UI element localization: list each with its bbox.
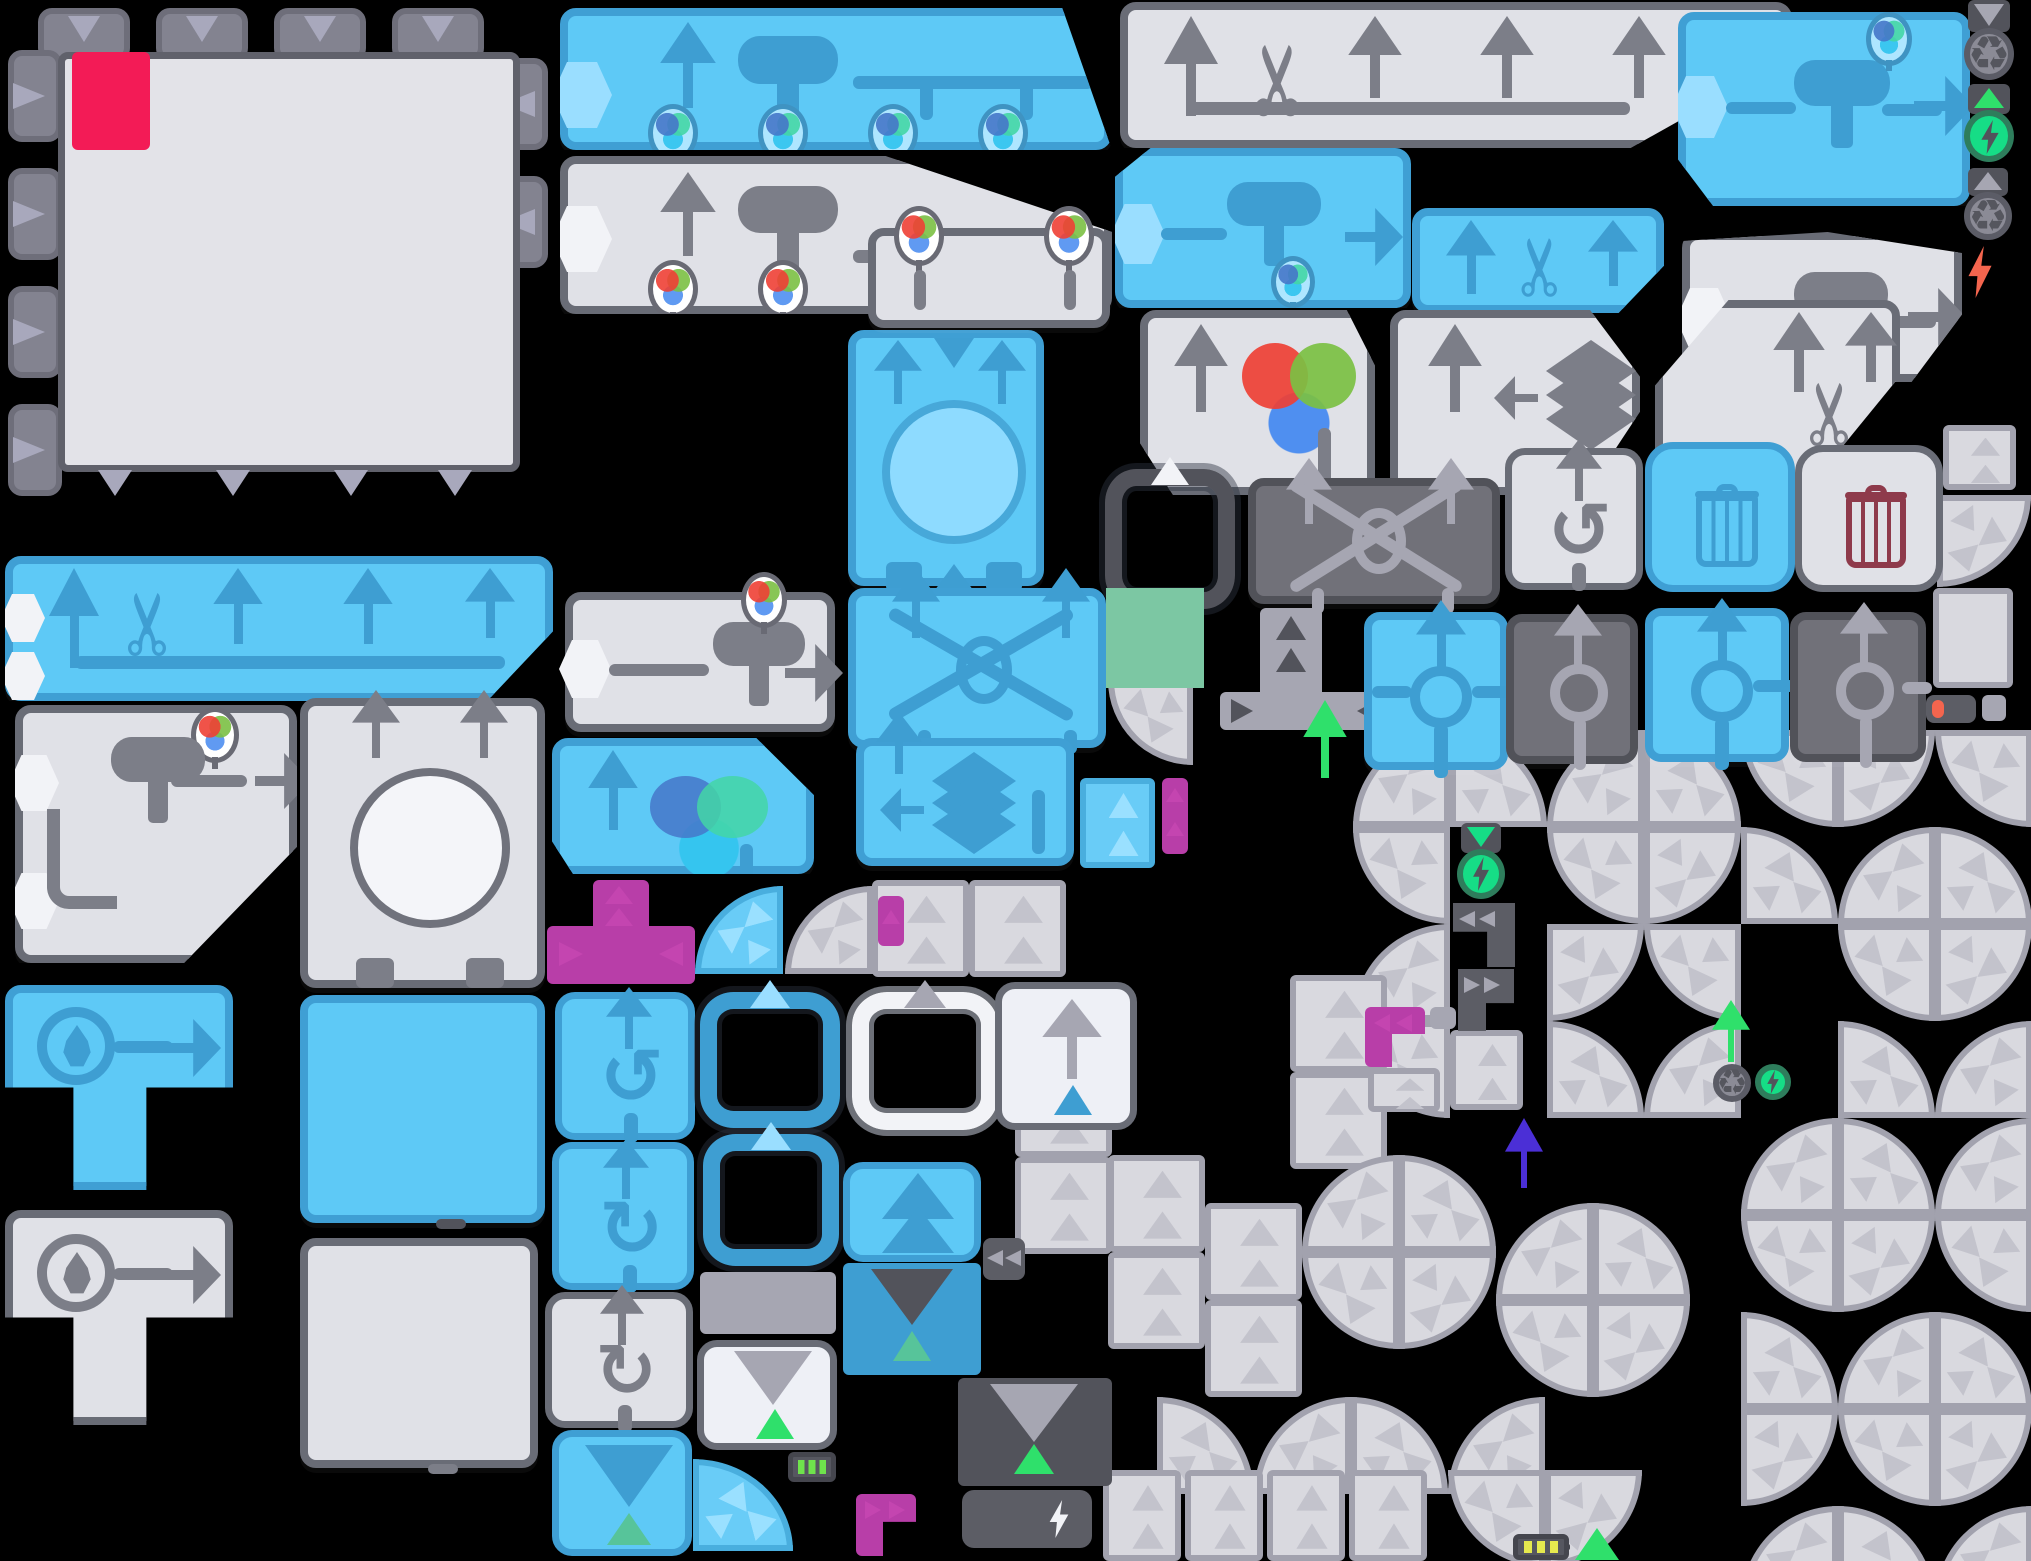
belt-curve-br — [1741, 1409, 1838, 1506]
belt-curve-bl — [1741, 1215, 1838, 1312]
sq-part — [1032, 790, 1045, 854]
arrow-up-icon — [1042, 999, 1102, 1079]
sq-part — [914, 270, 926, 310]
belt-curve-tr — [1838, 1021, 1935, 1118]
belt-arrow-icon — [1694, 937, 1730, 974]
belt-curve-br — [1547, 924, 1644, 1021]
arrow-up-icon — [1446, 220, 1496, 294]
belt-arrow-icon — [1662, 1054, 1699, 1095]
belt-arrow-icon — [1789, 1130, 1827, 1163]
rotation-disc — [882, 400, 1026, 544]
rotator-ccw-tile-gray: ↺ — [1505, 448, 1643, 590]
tri-part — [1479, 911, 1495, 927]
arrow-up-icon — [1174, 324, 1228, 412]
arrow-up-icon — [1164, 16, 1218, 116]
arrow-up-icon — [660, 22, 716, 108]
belt-arrow-icon — [1422, 1173, 1463, 1210]
sq-part — [700, 1272, 836, 1334]
belt-arrow-icon — [1378, 1523, 1409, 1548]
shape-input-icon — [552, 62, 612, 128]
belt-curve-tr — [1399, 1155, 1496, 1252]
sq-part — [1430, 1007, 1456, 1029]
rotator-ccw-tile-blue: ↺ — [555, 992, 695, 1140]
miner-frame-blue-2 — [703, 1122, 839, 1266]
belt-arrow-icon — [1849, 1068, 1885, 1105]
tri-part — [1484, 977, 1500, 993]
belt-curve-tr — [1838, 1506, 1935, 1561]
sq-part — [1574, 718, 1586, 770]
sq-part — [1161, 228, 1227, 240]
belt-arrow-icon — [1004, 896, 1043, 923]
miner-ring — [852, 992, 998, 1130]
belt-arrow-icon — [1861, 1524, 1902, 1561]
color-bulb-icon — [868, 104, 918, 162]
cross-ring — [1352, 508, 1406, 574]
arrow-up-icon — [1612, 16, 1666, 98]
belt-arrow-icon — [1885, 1362, 1922, 1398]
funnel-icon — [585, 1445, 673, 1507]
arrow-up-icon — [1428, 324, 1482, 412]
chevron-tile-dark — [983, 1238, 1025, 1280]
double-painter-blue-right — [1678, 12, 1970, 206]
belt-straight — [1450, 1030, 1523, 1110]
belt-arrow-icon — [1604, 1352, 1642, 1385]
belt-arrow-icon — [705, 1503, 740, 1539]
trash-tile-white — [1795, 445, 1943, 592]
wire-segment-dark-2 — [1458, 969, 1514, 1031]
belt-curve-tr — [1741, 1312, 1838, 1409]
belt-arrow-icon — [1143, 1171, 1182, 1198]
arrow-up-icon — [1416, 600, 1466, 672]
color-bulb-icon — [648, 104, 698, 162]
green-arrow-icon — [1303, 700, 1347, 778]
sq-part — [1726, 102, 1796, 114]
pin-recycle-down: ♻ — [1964, 0, 2014, 80]
arrow-up-icon — [352, 690, 400, 758]
belt-arrow-icon — [1558, 1481, 1595, 1517]
belt-curve-tr — [1593, 1203, 1690, 1300]
green-arrow-icon — [1712, 1000, 1750, 1062]
sq-part — [1064, 270, 1076, 310]
belt-arrow-icon — [1478, 1044, 1507, 1066]
belt-arrow-icon — [1565, 763, 1602, 804]
belt-arrow-icon — [1325, 991, 1364, 1018]
belt-arrow-icon — [1296, 1485, 1327, 1510]
wire-segment-dark-1 — [1453, 903, 1515, 967]
sprite-atlas-canvas: Factory-builder game building sprite atl… — [0, 0, 2031, 1561]
belt-arrow-icon — [1636, 1323, 1673, 1364]
belt-arrow-icon — [1558, 976, 1596, 1009]
trash-can-icon — [1846, 496, 1906, 568]
lightning-icon — [1046, 1500, 1072, 1538]
belt-arrow-icon — [1978, 947, 2015, 988]
belt-arrow-icon — [1240, 1356, 1279, 1383]
belt-arrow-icon — [1888, 937, 1924, 974]
belt-curve-bl — [1838, 1409, 1935, 1506]
arrow-up-icon — [1480, 16, 1534, 98]
belt-curve-tl — [1741, 1506, 1838, 1561]
belt-arrow-icon — [1784, 1432, 1821, 1473]
belt-arrow-icon — [1378, 1485, 1409, 1510]
belt-arrow-icon — [1461, 777, 1497, 814]
belt-curve-tl — [1935, 1118, 2031, 1215]
rotate-ccw-icon: ↺ — [1534, 489, 1626, 573]
wire-tee-magenta — [547, 880, 695, 988]
scissors-icon: ✂ — [1227, 25, 1331, 135]
belt-arrow-icon — [1978, 1432, 2015, 1473]
sq-part — [436, 1219, 466, 1229]
tri-part — [438, 470, 472, 496]
shape-input-icon — [9, 755, 59, 811]
belt-arrow-icon — [712, 917, 745, 954]
belt-arrow-icon — [1851, 1226, 1888, 1262]
scissors-icon: ✂ — [1498, 222, 1584, 312]
belt-arrow-icon — [1985, 1228, 2021, 1265]
arrow-left-icon — [1494, 376, 1538, 420]
belt-arrow-icon — [1793, 1360, 1826, 1398]
belt-arrow-icon — [1180, 1415, 1221, 1452]
belt-arrow-icon — [1410, 1304, 1448, 1337]
tri-part — [934, 338, 974, 368]
arrow-up-icon — [49, 568, 99, 668]
belt-arrow-icon — [1400, 974, 1437, 1010]
trash-can-icon — [1696, 495, 1758, 567]
belt-curve-bl — [1838, 924, 1935, 1021]
belt-curve-tl — [695, 886, 783, 974]
color-bulb-icon — [741, 572, 787, 628]
belt-curve-tl — [1496, 1203, 1593, 1300]
belt-curve-tl — [1838, 827, 1935, 924]
teal-square — [1106, 588, 1204, 688]
arrow-right-icon — [785, 644, 843, 702]
belt-curve-tr — [1935, 827, 2031, 924]
quad-painter-blue — [560, 8, 1112, 150]
belt-arrow-icon — [1529, 1343, 1570, 1380]
rotator-big-blue — [848, 330, 1044, 586]
belt-arrow-icon — [1791, 1228, 1827, 1265]
shape-input-icon — [559, 640, 611, 698]
belt-arrow-icon — [1050, 1213, 1089, 1240]
arrow-up-icon — [1348, 16, 1402, 98]
belt-curve-tr — [1838, 1118, 1935, 1215]
belt-arrow-icon — [1890, 1166, 1923, 1204]
tunnel-ring — [1836, 662, 1894, 720]
belt-arrow-icon — [1143, 1268, 1182, 1295]
belt-curve-tl — [1838, 1312, 1935, 1409]
belt-straight — [1108, 1155, 1205, 1252]
belt-curve-br — [1644, 827, 1741, 924]
green-triangle-small — [1575, 1528, 1619, 1560]
belt-arrow-icon — [1953, 1054, 1990, 1095]
shape-input-icon — [552, 206, 612, 272]
belt-arrow-icon — [1947, 544, 1984, 575]
pin-recycle-up: ♻ — [1964, 168, 2012, 240]
goal-trapezoid-blue — [843, 1263, 981, 1375]
bat-part — [788, 1452, 836, 1482]
belt-curve-tl — [1741, 1118, 1838, 1215]
belt-arrow-icon — [802, 917, 835, 954]
tri-part — [1464, 977, 1480, 993]
belt-arrow-icon — [1793, 875, 1826, 913]
belt-arrow-icon — [1885, 877, 1922, 913]
belt-arrow-icon — [1543, 1253, 1580, 1289]
paint-roller-icon — [1227, 182, 1321, 266]
miner-frame-blue — [700, 980, 840, 1128]
belt-arrow-icon — [1890, 1069, 1923, 1107]
belt-arrow-icon — [1616, 1221, 1657, 1258]
sq-part — [1753, 680, 1795, 692]
belt-straight — [1943, 425, 2016, 490]
wire-magenta-strip — [1162, 778, 1188, 854]
belt-arrow-icon — [1982, 1071, 2019, 1107]
arrow-right-icon — [1908, 288, 1966, 346]
arrow-up-icon — [1840, 602, 1888, 668]
funnel-icon — [734, 1351, 812, 1405]
belt-arrow-icon — [1508, 1311, 1541, 1349]
arrow-up-icon — [876, 712, 922, 774]
belt-arrow-icon — [1888, 1422, 1924, 1459]
belt-arrow-icon — [1788, 1168, 1825, 1204]
belt-arrow-icon — [1109, 831, 1139, 856]
rgb-color-mix-icon — [1240, 338, 1358, 456]
warning-triangle: ⚠ — [918, 1496, 966, 1558]
mini-recycle-circle: ♻ — [1713, 1064, 1751, 1102]
belt-curve-br — [1935, 924, 2031, 1021]
belt-arrow-icon — [1982, 1556, 2019, 1561]
green-triangle-icon — [1575, 1528, 1619, 1560]
belt-straight — [1205, 1203, 1302, 1300]
small-triangle-icon — [607, 1513, 651, 1545]
belt-arrow-icon — [1412, 1263, 1449, 1299]
belt-straight — [969, 880, 1066, 977]
hub-building — [8, 8, 548, 498]
belt-arrow-icon — [1947, 1226, 1980, 1264]
goal-trapezoid-dark — [958, 1378, 1112, 1486]
belt-arrow-icon — [1546, 1313, 1582, 1350]
belt-arrow-icon — [828, 932, 862, 964]
belt-curve-br — [1399, 1252, 1496, 1349]
belt-arrow-icon — [1752, 874, 1788, 911]
belt-arrow-icon — [1349, 1205, 1386, 1241]
belt-arrow-icon — [1850, 935, 1883, 973]
color-bulb-icon — [758, 260, 808, 318]
belt-arrow-icon — [1496, 1409, 1534, 1442]
belt-arrow-icon — [1861, 1039, 1902, 1076]
belt-arrow-icon — [1401, 936, 1439, 969]
belt-arrow-icon — [1656, 935, 1689, 973]
belt-arrow-icon — [1971, 438, 2000, 456]
arrow-up-icon — [213, 568, 263, 644]
belt-arrow-icon — [1386, 870, 1427, 907]
belt-arrow-icon — [1498, 1483, 1534, 1520]
sq-part — [853, 76, 1093, 89]
double-painter-gray-left — [15, 705, 297, 963]
belt-arrow-icon — [1478, 1078, 1507, 1100]
sq-part — [171, 775, 247, 787]
belt-curve-tr — [1935, 1312, 2031, 1409]
belt-arrow-icon — [738, 932, 772, 964]
belt-arrow-icon — [1109, 793, 1139, 818]
arrow-up-icon — [1554, 604, 1602, 670]
belt-curve-tl — [1935, 1506, 2031, 1561]
belt-arrow-icon — [1696, 778, 1729, 816]
belt-arrow-icon — [1849, 1165, 1885, 1202]
belt-arrow-icon — [1987, 1360, 2020, 1398]
tri-part — [987, 1250, 1003, 1266]
belt-arrow-icon — [1442, 1275, 1479, 1316]
belt-arrow-icon — [1849, 782, 1887, 815]
belt-arrow-icon — [1374, 1415, 1415, 1452]
belt-arrow-icon — [1272, 1430, 1309, 1471]
belt-curve-tl — [1935, 1021, 2031, 1118]
filter-up-blue — [843, 1162, 981, 1262]
belt-arrow-icon — [829, 897, 864, 927]
belt-arrow-icon — [1971, 465, 2000, 483]
tunnel-exit-dark — [1506, 614, 1638, 764]
belt-arrow-icon — [1645, 1251, 1678, 1289]
belt-straight — [1015, 1157, 1112, 1254]
battery-bolt-dark — [962, 1490, 1092, 1548]
miner-frame-white — [852, 980, 998, 1130]
pin-energy-field — [1457, 823, 1505, 899]
belt-straight — [1080, 778, 1155, 868]
belt-arrow-icon — [1983, 1518, 2021, 1551]
sq-part — [1434, 724, 1448, 778]
belt-arrow-icon — [1983, 1033, 2021, 1066]
arrow-up-icon — [1845, 312, 1897, 382]
sq-part — [1572, 563, 1586, 591]
belt-straight — [1349, 1470, 1427, 1561]
small-triangle-icon — [1054, 1085, 1092, 1115]
rotate-cw-icon: ↻ — [585, 1187, 677, 1271]
belt-arrow-icon — [1580, 870, 1621, 907]
bolt-part — [1964, 246, 1996, 298]
tunnel-ring — [1410, 666, 1472, 728]
belt-arrow-icon — [1560, 935, 1597, 971]
belt-arrow-icon — [1132, 1523, 1163, 1548]
belt-straight — [1205, 1300, 1302, 1397]
shape-input-icon — [1, 652, 45, 700]
hub-red-marker — [72, 52, 150, 150]
small-triangle-icon — [756, 1409, 794, 1439]
belt-arrow-icon — [1953, 1151, 1990, 1192]
paint-roller-icon — [1794, 60, 1890, 148]
tunnel-entry-blue-2 — [1645, 608, 1789, 762]
battery-yellow — [1513, 1534, 1569, 1560]
belt-arrow-icon — [1759, 1539, 1796, 1561]
belt-curve-bl — [1302, 1252, 1399, 1349]
belt-arrow-icon — [1325, 1128, 1364, 1155]
belt-arrow-icon — [1214, 1523, 1245, 1548]
arrow-up-icon — [660, 172, 716, 256]
belt-arrow-icon — [1764, 845, 1805, 882]
gray-chip — [1982, 695, 2006, 721]
color-bulb-icon — [758, 104, 808, 162]
belt-arrow-icon — [1403, 840, 1439, 877]
belt-arrow-icon — [1958, 1330, 1999, 1367]
arrow-right-icon — [163, 1019, 221, 1077]
belt-arrow-icon — [1850, 1420, 1883, 1458]
belt-arrow-icon — [1559, 838, 1592, 876]
belt-arrow-icon — [1881, 1238, 1918, 1279]
double-painter-gray-mid — [868, 228, 1110, 328]
belt-arrow-icon — [1466, 1430, 1503, 1471]
belt-arrow-icon — [1314, 1263, 1347, 1301]
belt-curve-tr — [1547, 1021, 1644, 1118]
sq-part — [75, 656, 505, 669]
shape-input-icon — [1, 594, 45, 642]
belt-arrow-icon — [1352, 1265, 1388, 1302]
belt-arrow-icon — [1753, 1226, 1786, 1264]
belt-arrow-icon — [1320, 1188, 1357, 1229]
tri-part — [216, 470, 250, 496]
belt-arrow-icon — [1502, 778, 1535, 816]
belt-arrow-icon — [1599, 1069, 1632, 1107]
belt-arrow-icon — [1946, 976, 1984, 1009]
double-painter-gray-c — [565, 592, 835, 732]
color-bulb-icon — [978, 104, 1028, 162]
indigo-arrow-up — [1505, 1118, 1543, 1188]
pipe-machine-gray — [5, 1210, 233, 1425]
belt-arrow-icon — [1396, 1078, 1425, 1090]
sq-part — [1860, 716, 1872, 768]
gray-stub — [1430, 1007, 1456, 1029]
belt-arrow-icon — [1657, 838, 1694, 874]
belt-curve-bl — [1108, 680, 1193, 765]
belt-arrow-icon — [1948, 935, 1985, 971]
balancer-dark — [1248, 478, 1500, 604]
rotator-cw-tile-blue: ↻ — [552, 1142, 694, 1290]
tri-part — [98, 470, 132, 496]
miner-ring — [700, 992, 840, 1128]
arrow-left-icon — [880, 788, 924, 832]
belt-arrow-icon — [1153, 691, 1184, 724]
belt-curve-tl — [785, 886, 873, 974]
battery-green — [788, 1452, 836, 1482]
belt-arrow-icon — [1597, 840, 1633, 877]
belt-arrow-icon — [1396, 1097, 1425, 1109]
color-bulb-icon — [1866, 12, 1912, 66]
arrow-right-icon — [163, 1246, 221, 1304]
belt-arrow-icon — [1861, 1136, 1902, 1173]
belt-arrow-icon — [1886, 839, 1924, 872]
recycle-icon: ♻ — [1964, 28, 2014, 80]
belt-arrow-icon — [1240, 1316, 1279, 1343]
arrow-up-icon — [465, 568, 515, 638]
rotator-big-gray — [300, 698, 545, 988]
mini-energy-circle — [1755, 1064, 1791, 1100]
sq-part — [356, 958, 394, 988]
cross-mark-red: ✖ — [790, 1494, 852, 1558]
belt-arrow-icon — [1946, 874, 1982, 911]
rotator-cw-tile-gray: ↻ — [545, 1292, 693, 1428]
belt-curve-br — [1937, 495, 2031, 587]
sq-part — [1715, 718, 1729, 770]
belt-arrow-icon — [1544, 1215, 1582, 1248]
belt-arrow-icon — [1968, 1258, 2009, 1295]
pipe-machine-blue — [5, 985, 233, 1190]
belt-curve-tr — [693, 1459, 793, 1551]
belt-arrow-icon — [1400, 780, 1437, 816]
belt-arrow-icon — [1982, 1168, 2019, 1204]
belt-curve-tr — [1741, 827, 1838, 924]
sq-part — [1932, 700, 1944, 718]
belt-arrow-icon — [1214, 1485, 1245, 1510]
belt-arrow-icon — [1240, 1259, 1279, 1286]
double-painter-blue-mid — [1115, 148, 1411, 308]
battery-chip-red — [1926, 695, 1976, 723]
belt-arrow-icon — [1143, 1308, 1182, 1335]
